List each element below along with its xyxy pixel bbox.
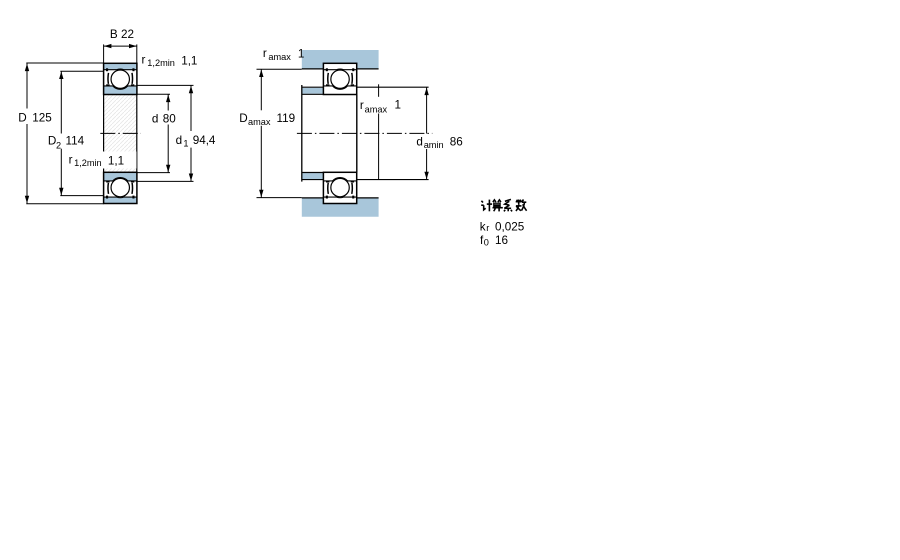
svg-text:k: k: [480, 220, 486, 233]
svg-text:1,2min: 1,2min: [74, 158, 102, 168]
svg-text:amax: amax: [365, 104, 388, 114]
svg-text:22: 22: [121, 28, 134, 41]
svg-text:119: 119: [277, 112, 296, 125]
svg-text:1: 1: [183, 139, 188, 149]
svg-text:94,4: 94,4: [193, 134, 216, 147]
svg-text:0: 0: [484, 237, 489, 247]
svg-text:1,1: 1,1: [108, 154, 124, 167]
svg-text:r: r: [263, 47, 267, 60]
svg-text:B: B: [110, 28, 118, 41]
svg-text:D: D: [18, 111, 26, 124]
svg-text:d: d: [176, 134, 183, 147]
svg-text:0,025: 0,025: [495, 220, 525, 233]
svg-text:1,1: 1,1: [181, 54, 197, 67]
svg-text:80: 80: [163, 112, 177, 125]
svg-text:1: 1: [298, 47, 305, 60]
svg-text:1: 1: [395, 99, 402, 112]
svg-text:114: 114: [66, 135, 85, 148]
svg-text:r: r: [69, 153, 73, 166]
svg-text:d: d: [416, 136, 423, 149]
svg-text:86: 86: [450, 136, 463, 149]
svg-text:125: 125: [32, 111, 52, 124]
svg-text:amin: amin: [424, 140, 444, 150]
svg-text:D: D: [239, 112, 247, 125]
svg-text:r: r: [486, 223, 489, 233]
svg-text:amax: amax: [248, 117, 271, 127]
svg-text:16: 16: [495, 234, 508, 247]
svg-text:1,2min: 1,2min: [147, 58, 175, 68]
svg-text:r: r: [142, 53, 146, 66]
svg-text:2: 2: [56, 141, 61, 151]
svg-text:amax: amax: [268, 52, 291, 62]
svg-text:r: r: [360, 99, 364, 112]
svg-text:d: d: [152, 112, 159, 125]
